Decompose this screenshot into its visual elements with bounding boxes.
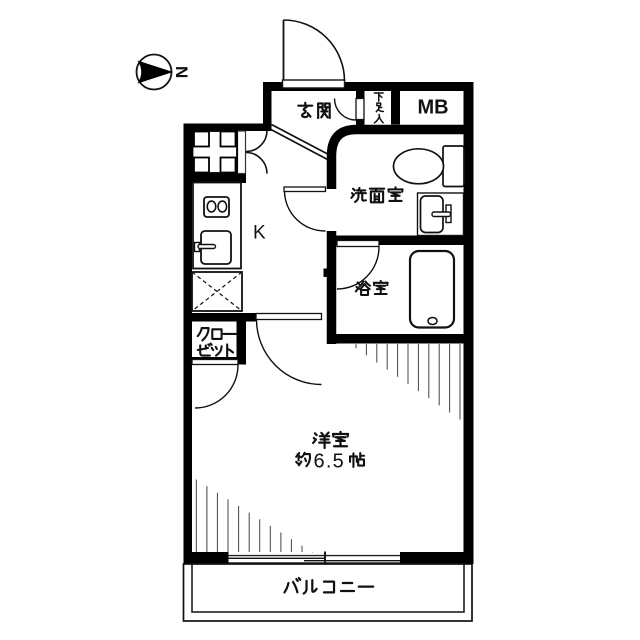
svg-text:6.5: 6.5 bbox=[314, 451, 345, 473]
svg-text:N: N bbox=[172, 66, 191, 78]
svg-text:MB: MB bbox=[417, 97, 448, 119]
svg-text:K: K bbox=[253, 223, 266, 244]
